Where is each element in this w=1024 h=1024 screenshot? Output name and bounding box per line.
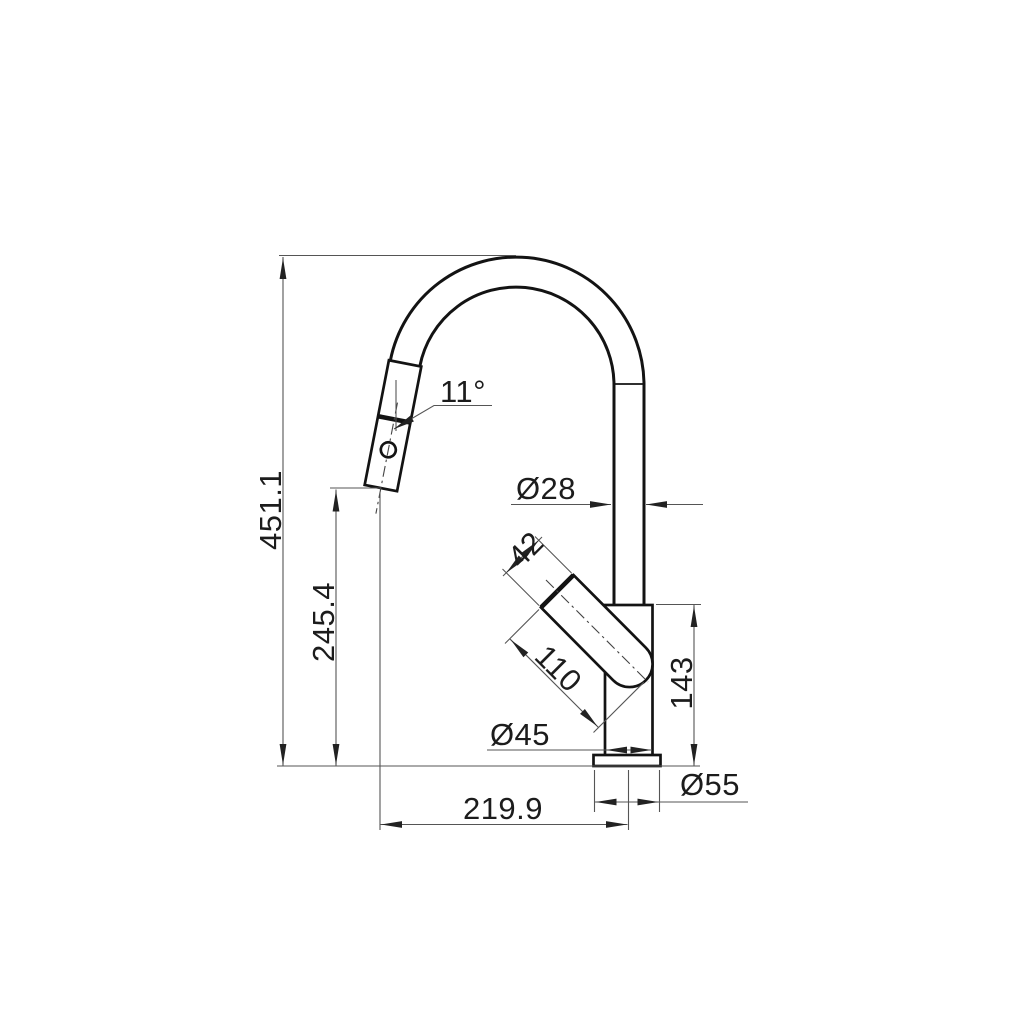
dim-body-height-text: 143 [664, 656, 699, 709]
dim-spout-diameter-text: Ø28 [516, 471, 576, 506]
dimension-arrow [280, 744, 287, 765]
dimension-arrow [646, 501, 667, 508]
dim-outlet-height: 245.4 [306, 488, 381, 766]
dim-spout-diameter: Ø28 [511, 471, 703, 508]
dim-base-diameter-text: Ø55 [680, 767, 740, 802]
dimension-arrow [333, 744, 340, 765]
dimension-arrow [606, 821, 627, 828]
dimension-arrow [596, 799, 617, 806]
dimension-arrow [691, 606, 698, 627]
dimension-arrow [580, 709, 600, 729]
dim-handle-diameter-ext-1 [503, 569, 540, 606]
dim-handle-diameter-text: 42 [501, 525, 551, 575]
dimension-arrow [691, 744, 698, 765]
dim-base-diameter: Ø55 [595, 767, 749, 812]
base-flange [594, 755, 661, 766]
dimension-arrow [590, 501, 611, 508]
dim-head-angle-text: 11° [440, 374, 486, 409]
dim-total-height-text: 451.1 [253, 470, 288, 550]
dimension-arrow [333, 491, 340, 512]
dimension-arrow [280, 258, 287, 279]
drawing-canvas: 451.1 245.4 143 Ø28 Ø45 Ø55 [0, 0, 1024, 1024]
dim-spout-reach-text: 219.9 [463, 791, 543, 826]
dimension-arrow [381, 821, 402, 828]
dim-body-height: 143 [656, 605, 701, 766]
dimension-arrow [638, 799, 659, 806]
dim-handle-length-ext-1 [505, 610, 539, 644]
drawing-page: 451.1 245.4 143 Ø28 Ø45 Ø55 [0, 0, 1024, 1024]
spray-head [360, 360, 422, 516]
dimension-arrow [509, 638, 529, 658]
dim-total-height: 451.1 [253, 256, 516, 766]
dim-spout-reach: 219.9 [380, 492, 628, 830]
dim-outlet-height-text: 245.4 [306, 582, 341, 662]
dim-body-diameter-text: Ø45 [490, 717, 550, 752]
